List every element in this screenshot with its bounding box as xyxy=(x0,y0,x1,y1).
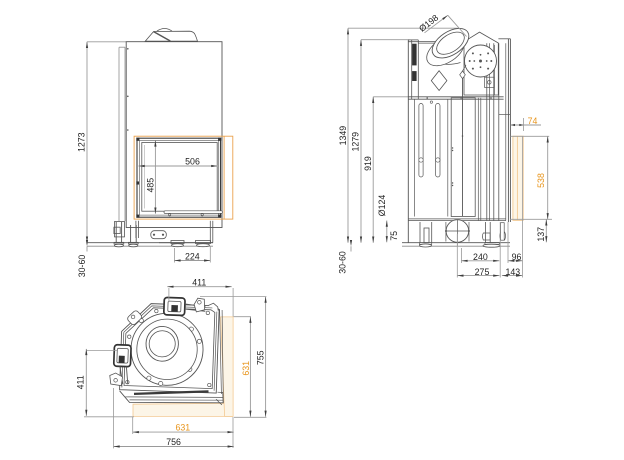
svg-text:631: 631 xyxy=(241,361,251,376)
svg-text:919: 919 xyxy=(363,156,373,171)
svg-text:75: 75 xyxy=(389,231,399,241)
svg-text:755: 755 xyxy=(255,350,265,365)
svg-text:74: 74 xyxy=(528,116,538,126)
svg-text:631: 631 xyxy=(175,423,190,433)
svg-text:538: 538 xyxy=(536,173,546,188)
svg-text:1349: 1349 xyxy=(338,126,348,146)
svg-text:756: 756 xyxy=(166,437,181,447)
svg-text:485: 485 xyxy=(146,178,156,193)
svg-text:Ø124: Ø124 xyxy=(377,195,387,217)
svg-text:275: 275 xyxy=(475,267,490,277)
svg-text:96: 96 xyxy=(512,252,522,262)
svg-text:30-60: 30-60 xyxy=(77,255,87,278)
svg-text:411: 411 xyxy=(75,375,85,389)
svg-text:137: 137 xyxy=(536,227,546,242)
svg-text:1273: 1273 xyxy=(77,132,87,152)
svg-text:30-60: 30-60 xyxy=(337,251,347,274)
svg-text:224: 224 xyxy=(185,251,200,261)
svg-text:411: 411 xyxy=(192,277,206,287)
svg-text:506: 506 xyxy=(185,157,200,167)
svg-text:143: 143 xyxy=(505,267,520,277)
svg-text:1279: 1279 xyxy=(351,132,361,152)
svg-text:240: 240 xyxy=(473,252,488,262)
